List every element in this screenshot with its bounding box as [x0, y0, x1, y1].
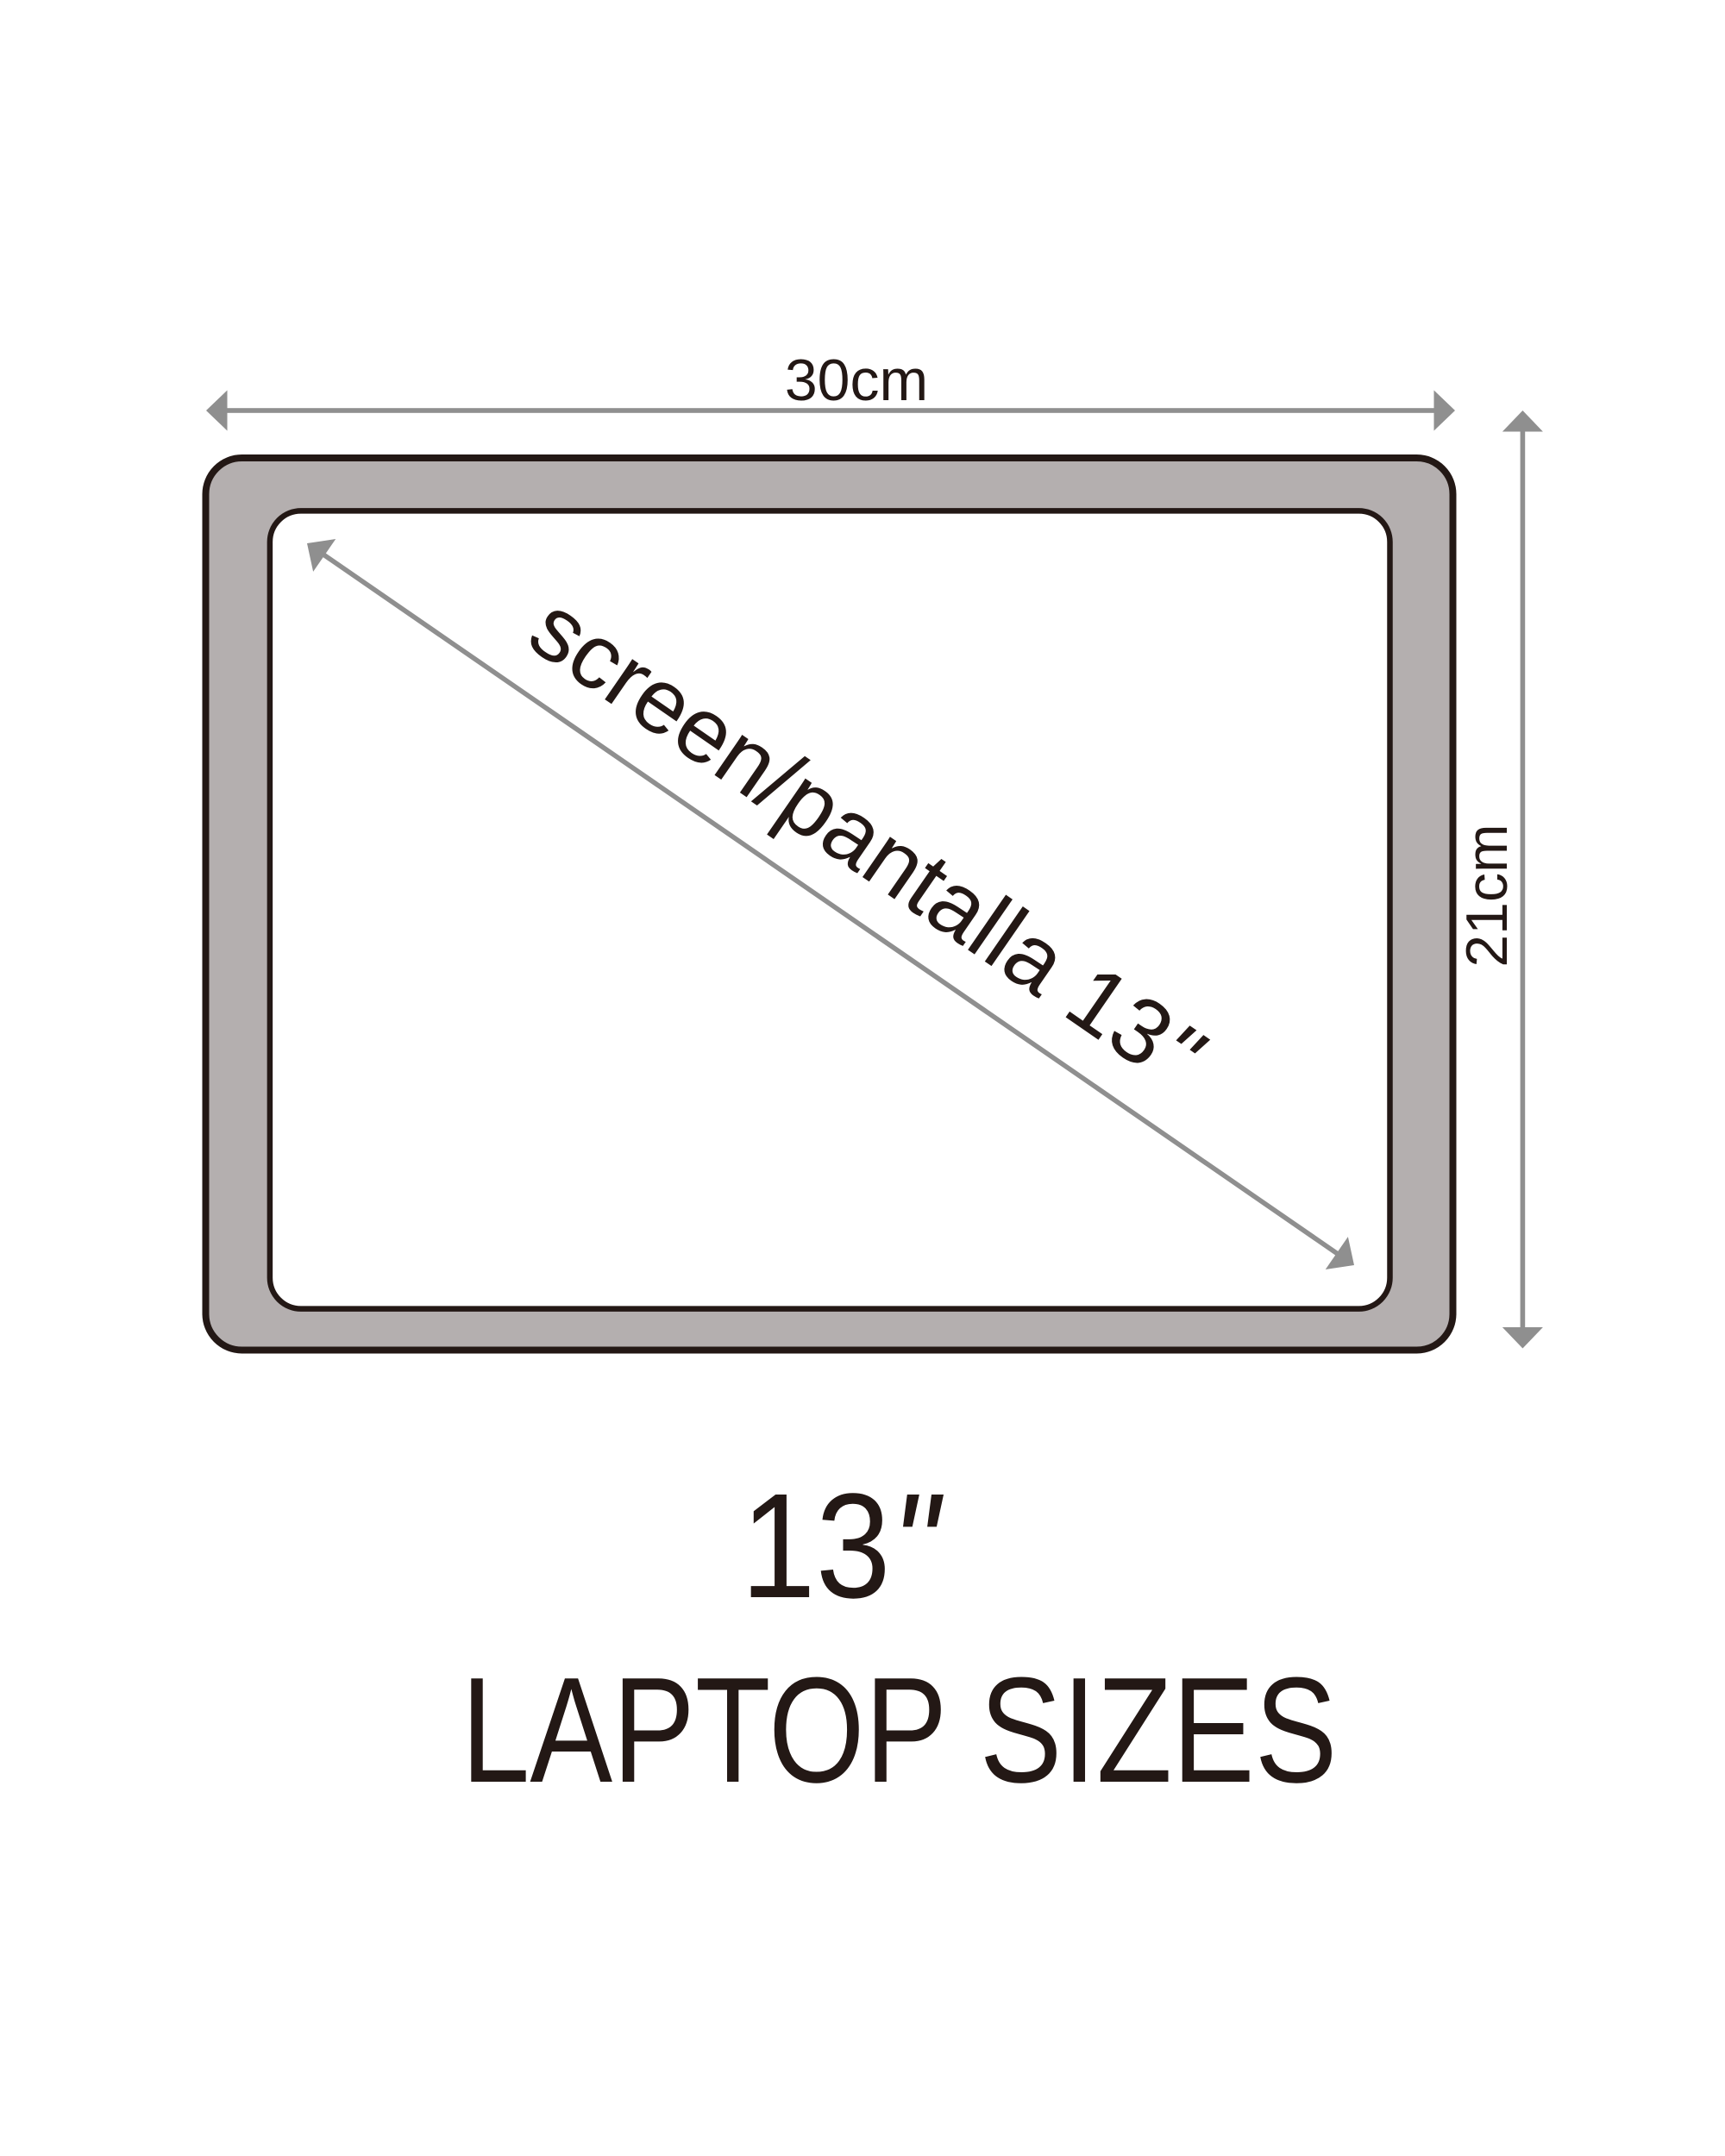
svg-text:30cm: 30cm [785, 348, 928, 413]
svg-text:21cm: 21cm [1454, 824, 1520, 967]
svg-text:LAPTOP SIZES: LAPTOP SIZES [461, 1646, 1338, 1814]
svg-text:13": 13" [741, 1463, 944, 1629]
